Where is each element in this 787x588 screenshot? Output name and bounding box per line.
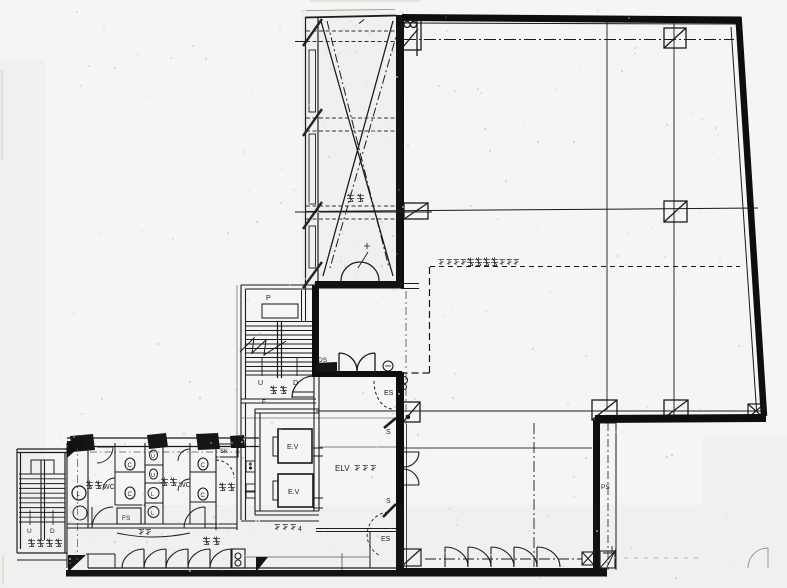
svg-text:C: C (201, 493, 206, 499)
svg-text:F: F (262, 400, 266, 406)
svg-text:ES: ES (384, 390, 394, 397)
svg-text:U: U (151, 473, 155, 479)
svg-text:PS: PS (601, 484, 610, 491)
svg-text:E.V: E.V (287, 444, 299, 451)
svg-text:S: S (386, 498, 391, 505)
svg-text:E.V: E.V (288, 489, 300, 496)
svg-text:C: C (128, 463, 133, 469)
svg-text:C: C (128, 492, 133, 498)
svg-text:L: L (151, 492, 154, 498)
svg-text:U: U (258, 380, 263, 387)
svg-text:ELV: ELV (335, 464, 350, 473)
svg-text:U: U (151, 454, 155, 460)
svg-text:SK: SK (220, 449, 228, 455)
svg-text:WC: WC (103, 484, 115, 491)
svg-text:C: C (201, 463, 206, 469)
svg-text:S: S (386, 429, 391, 436)
svg-text:P: P (266, 295, 271, 302)
